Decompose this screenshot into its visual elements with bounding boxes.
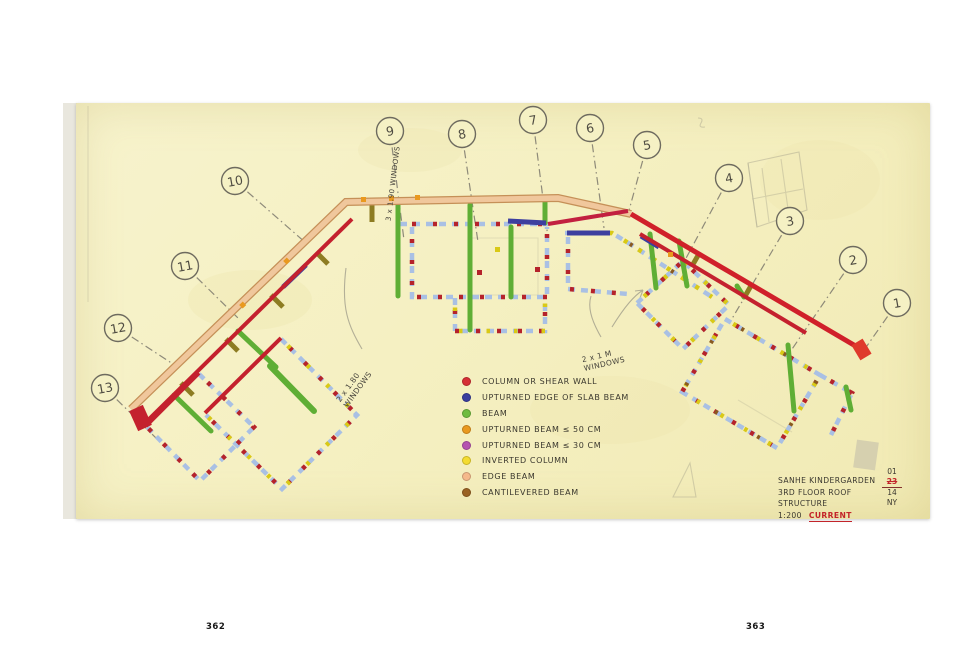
legend-color-dot [462,456,471,465]
page-number-right: 363 [746,622,765,632]
legend-label: CANTILEVERED BEAM [482,488,579,497]
grid-bubble-2: 2 [788,247,867,356]
project-name: SANHE KINDERGARDEN [778,475,890,487]
legend-item: INVERTED COLUMN [462,453,629,469]
legend-label: UPTURNED BEAM ≤ 30 CM [482,441,601,450]
legend-item: EDGE BEAM [462,469,629,485]
structural-plan-drawing: 12345678910111213 [0,0,964,666]
drawing-scale: 1:200 [778,510,802,522]
legend-color-dot [462,393,471,402]
legend-item: BEAM [462,406,629,422]
legend-color-dot [462,377,471,386]
legend-label: BEAM [482,409,507,418]
stamp-line: 01 [882,467,902,477]
svg-text:10: 10 [226,172,244,190]
legend-color-dot [462,409,471,418]
grid-bubble-12: 12 [105,315,177,367]
legend-label: COLUMN OR SHEAR WALL [482,377,597,386]
legend-color-dot [462,488,471,497]
legend: COLUMN OR SHEAR WALLUPTURNED EDGE OF SLA… [462,374,629,500]
grid-bubble-5: 5 [628,132,661,215]
drawing-name: 3RD FLOOR ROOF STRUCTURE [778,487,890,510]
legend-color-dot [462,425,471,434]
tape-mark [853,440,879,471]
svg-text:11: 11 [176,257,194,275]
title-block: SANHE KINDERGARDEN 3RD FLOOR ROOF STRUCT… [778,475,890,522]
grid-bubble-4: 4 [684,165,743,263]
revision-stamp: 01 23 14 NY [882,467,902,508]
stamp-initials: NY [882,498,902,508]
scanned-book-spread: 12345678910111213 [0,0,964,666]
legend-label: INVERTED COLUMN [482,456,568,465]
legend-color-dot [462,472,471,481]
legend-item: UPTURNED EDGE OF SLAB BEAM [462,390,629,406]
grid-bubble-3: 3 [730,208,804,323]
legend-label: UPTURNED EDGE OF SLAB BEAM [482,393,629,402]
drawing-status: CURRENT [809,510,852,523]
legend-item: UPTURNED BEAM ≤ 30 CM [462,437,629,453]
legend-item: CANTILEVERED BEAM [462,485,629,501]
stamp-line: 14 [882,488,902,498]
stamp-line-crossed: 23 [882,477,902,488]
legend-label: UPTURNED BEAM ≤ 50 CM [482,425,601,434]
page-number-left: 362 [206,622,225,632]
legend-label: EDGE BEAM [482,472,535,481]
grid-bubble-1: 1 [862,290,911,354]
grid-bubble-10: 10 [222,168,307,244]
legend-color-dot [462,441,471,450]
svg-text:13: 13 [96,379,114,397]
legend-item: COLUMN OR SHEAR WALL [462,374,629,390]
legend-item: UPTURNED BEAM ≤ 50 CM [462,421,629,437]
svg-text:12: 12 [109,319,127,337]
